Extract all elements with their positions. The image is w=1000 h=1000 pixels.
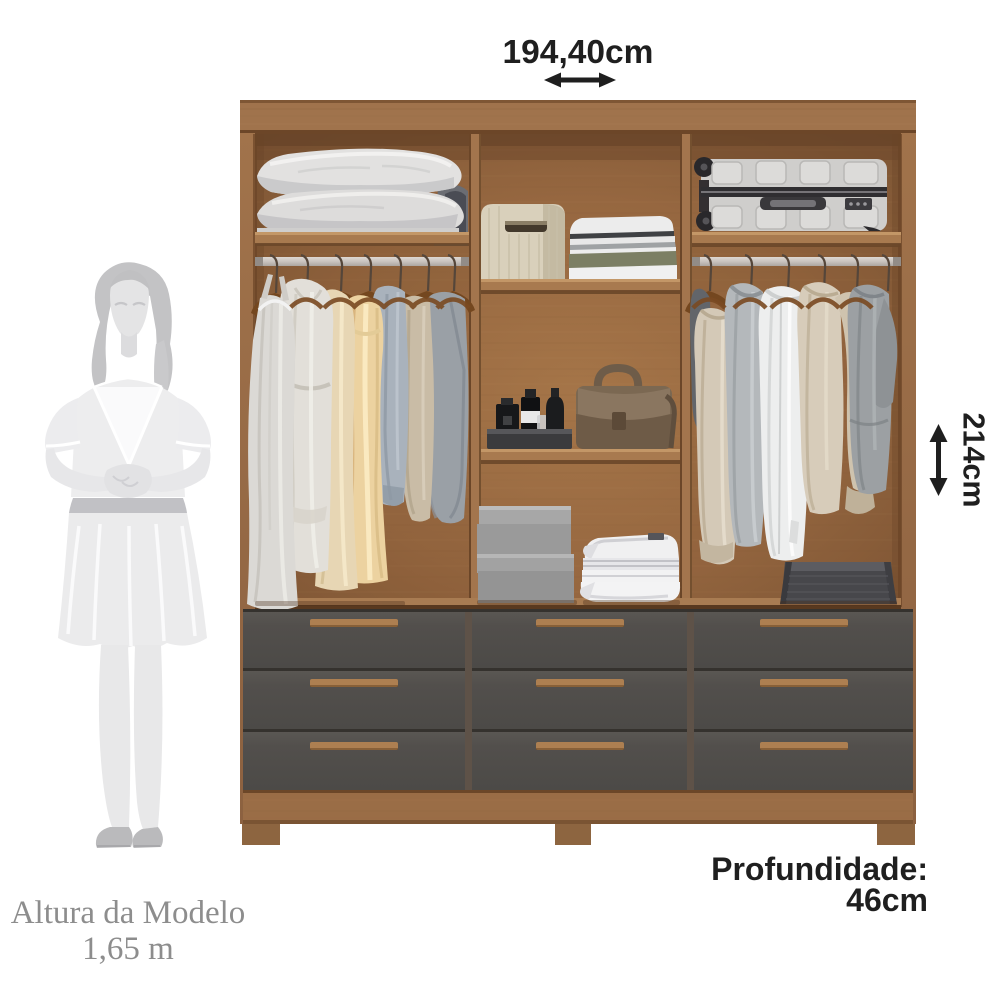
svg-text:214cm: 214cm: [957, 413, 991, 508]
svg-text:194,40cm: 194,40cm: [503, 34, 654, 71]
svg-text:Altura da Modelo: Altura da Modelo: [11, 895, 246, 931]
svg-text:46cm: 46cm: [846, 882, 928, 918]
svg-text:1,65 m: 1,65 m: [82, 931, 174, 967]
